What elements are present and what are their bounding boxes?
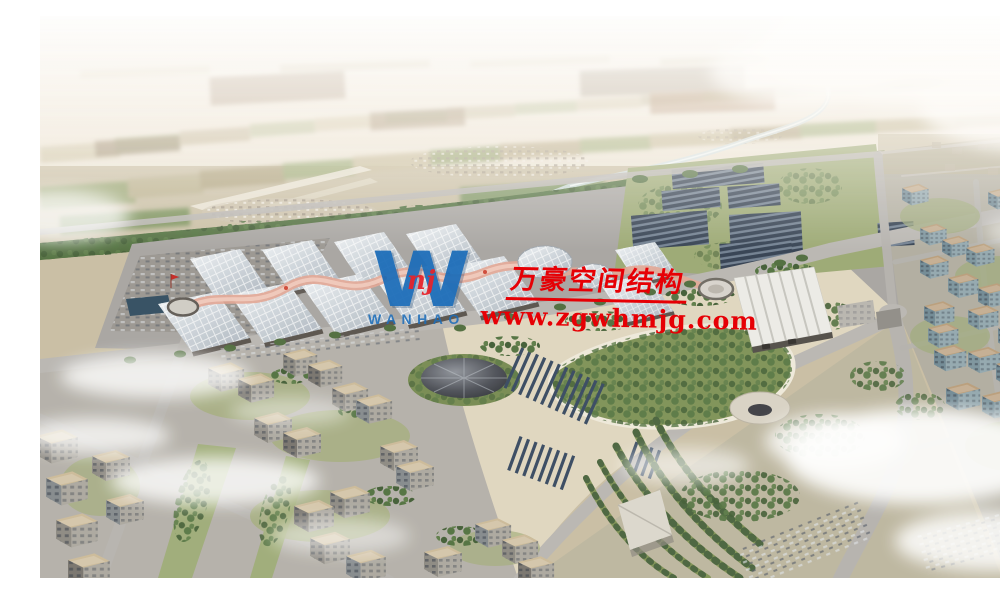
scene-illustration xyxy=(40,16,1000,578)
aerial-rendering: W nj WANHAO 万豪空间结构 www.zgwhmjg.com xyxy=(40,16,1000,578)
warm-tint xyxy=(40,16,1000,578)
